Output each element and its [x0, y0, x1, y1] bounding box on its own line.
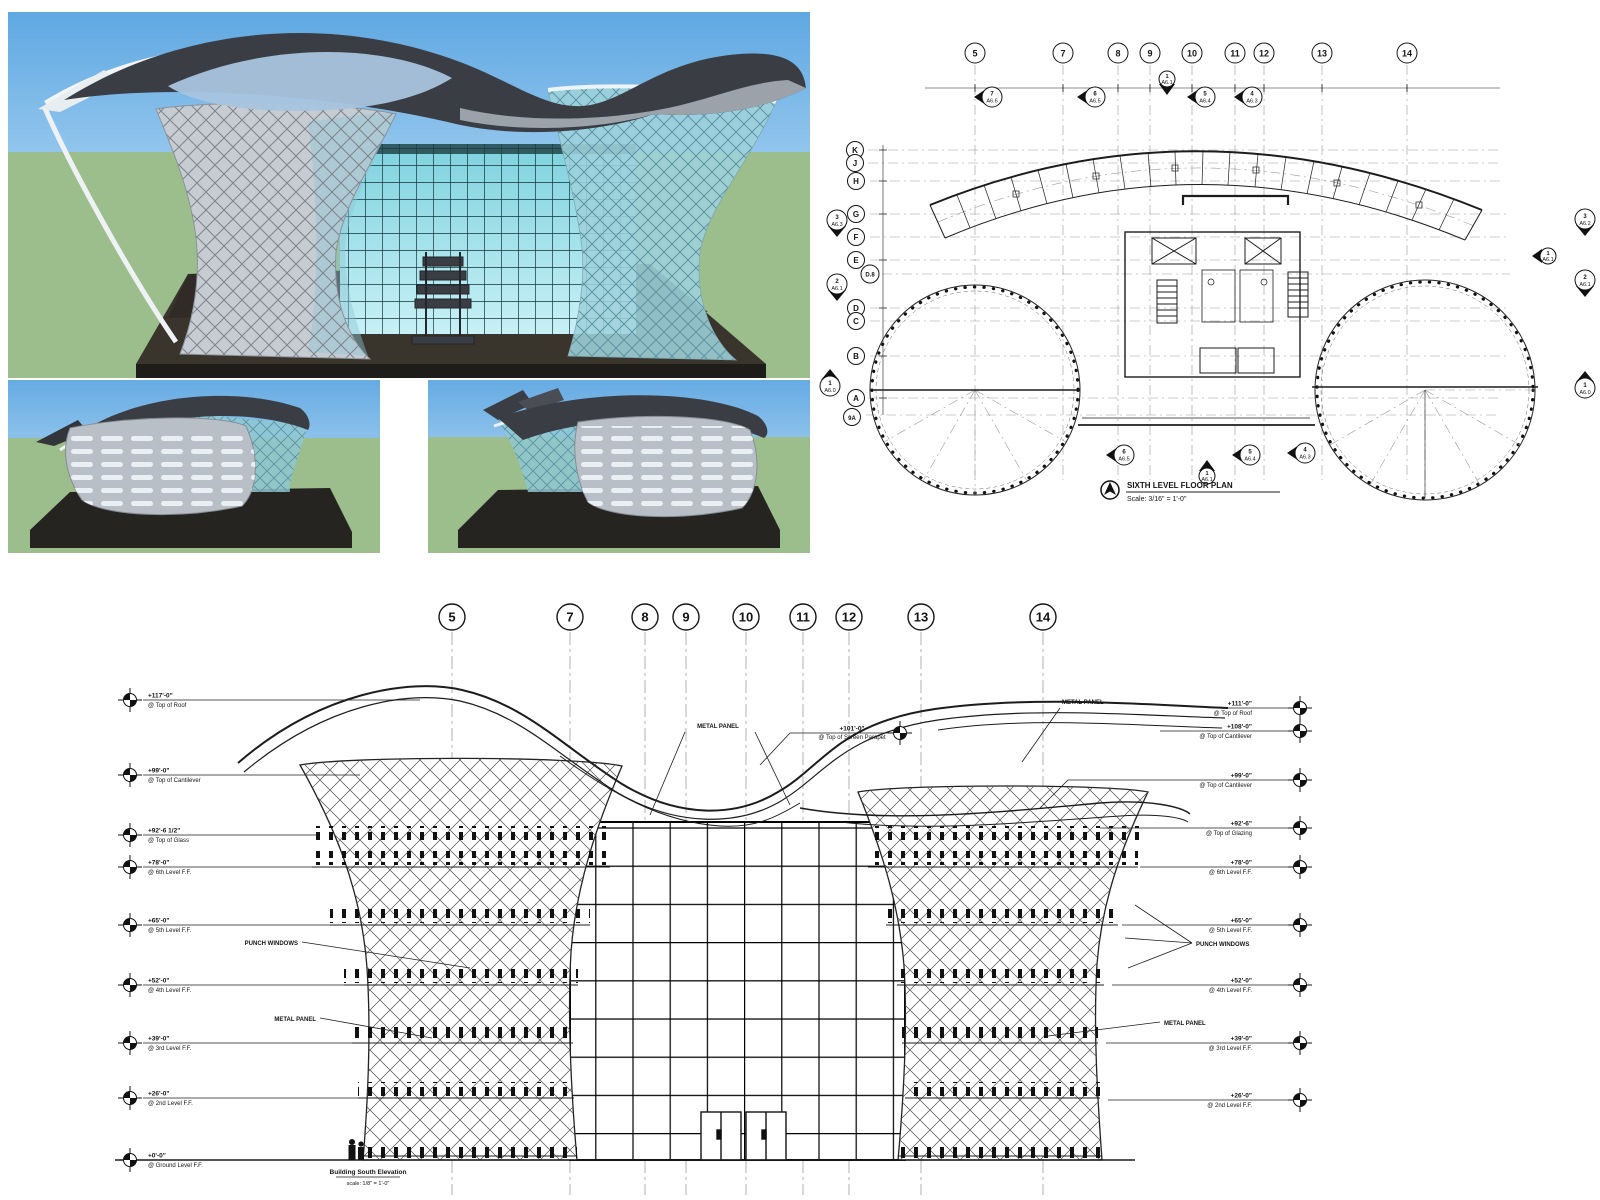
level-datum: +108'-0" @ Top of Cantilever: [1160, 719, 1312, 743]
level-datum: +52'-0" @ 4th Level F.F.: [1112, 973, 1312, 997]
svg-text:A6.1: A6.1: [1161, 80, 1172, 86]
svg-text:+52'-0": +52'-0": [1231, 978, 1252, 985]
svg-text:@ 2nd Level F.F.: @ 2nd Level F.F.: [1207, 1103, 1252, 1109]
render-thumb-left: [8, 380, 380, 553]
section-marker-icon: 3 A6.3: [827, 210, 847, 237]
level-datum: +78'-0" @ 6th Level F.F.: [1140, 855, 1312, 879]
svg-text:+117'-0": +117'-0": [148, 693, 173, 700]
svg-text:+26'-0": +26'-0": [1231, 1093, 1252, 1100]
svg-text:@ 5th Level F.F.: @ 5th Level F.F.: [148, 928, 191, 934]
elev-title-block: Building South Elevation scale: 1/8" = 1…: [330, 1169, 407, 1187]
grid-bubble: 7: [566, 610, 573, 625]
parapet-datum: +101'-0" @ Top of Screen Parapet: [760, 721, 912, 765]
section-marker-icon: 2 A6.1: [827, 274, 847, 301]
plan-core: [1125, 196, 1308, 377]
svg-text:@ Top of Screen Parapet: @ Top of Screen Parapet: [818, 735, 886, 741]
section-marker-icon: 1 A6.0: [820, 369, 840, 396]
louver-slots: [574, 426, 758, 510]
level-datum: +0'-0" @ Ground Level F.F.: [118, 1148, 340, 1172]
svg-text:@ Top of Cantilever: @ Top of Cantilever: [1199, 734, 1252, 740]
level-datum: +65'-0" @ 5th Level F.F.: [118, 913, 344, 937]
svg-text:+65'-0": +65'-0": [148, 918, 169, 925]
svg-text:@ 4th Level F.F.: @ 4th Level F.F.: [148, 988, 191, 994]
svg-text:+0'-0": +0'-0": [148, 1153, 166, 1160]
svg-text:+78'-0": +78'-0": [1231, 860, 1252, 867]
svg-text:@ 4th Level F.F.: @ 4th Level F.F.: [1209, 988, 1252, 994]
svg-text:@ 6th Level F.F.: @ 6th Level F.F.: [1209, 870, 1252, 876]
metal-band: [574, 416, 758, 516]
svg-text:A6.3: A6.3: [831, 222, 842, 228]
svg-text:A6.4: A6.4: [1244, 457, 1255, 463]
svg-text:+52'-0": +52'-0": [148, 978, 169, 985]
section-marker-icon: 4 A6.3: [1234, 87, 1262, 107]
section-marker-icon: 5 A6.4: [1187, 87, 1215, 107]
section-marker-icon: 3 A6.2: [1575, 209, 1595, 236]
level-datum: +39'-0" @ 3rd Level F.F.: [118, 1031, 362, 1055]
grid-bubble: G: [853, 210, 859, 219]
metal-band: [64, 418, 260, 515]
plan-title: SIXTH LEVEL FLOOR PLAN: [1127, 481, 1233, 490]
plan-left-drum: [870, 285, 1080, 495]
svg-text:A6.3: A6.3: [1299, 455, 1310, 461]
elev-building: [115, 686, 1228, 1160]
plan-grid-row-bubbles: [844, 142, 880, 426]
svg-text:@ Top of Cantilever: @ Top of Cantilever: [148, 778, 201, 784]
svg-text:+92'-6 1/2": +92'-6 1/2": [148, 828, 180, 835]
svg-text:A6.3: A6.3: [1246, 99, 1257, 105]
svg-text:@ Ground Level F.F.: @ Ground Level F.F.: [148, 1163, 203, 1169]
annotation-metal-panel-topright: METAL PANEL: [1022, 700, 1104, 762]
scale-figures: [349, 1139, 365, 1160]
level-datum: +65'-0" @ 5th Level F.F.: [1122, 913, 1312, 937]
grid-bubble: 12: [842, 610, 856, 625]
svg-text:@ 2nd Level F.F.: @ 2nd Level F.F.: [148, 1101, 193, 1107]
svg-text:@ 3rd Level F.F.: @ 3rd Level F.F.: [148, 1046, 192, 1052]
svg-text:METAL PANEL: METAL PANEL: [274, 1017, 316, 1023]
grid-bubble: 10: [739, 610, 753, 625]
north-arrow-icon: [1104, 482, 1116, 495]
level-datum: +111'-0" @ Top of Roof: [1214, 696, 1312, 720]
section-marker-icon: 6 A6.5: [1106, 445, 1134, 465]
grid-bubble: 9A: [848, 416, 856, 422]
svg-text:A6.6: A6.6: [986, 99, 997, 105]
annotation-metal-panel-center: METAL PANEL: [650, 724, 790, 815]
level-datum: +39'-0" @ 3rd Level F.F.: [1106, 1031, 1312, 1055]
grid-bubble: D.8: [865, 273, 875, 279]
plan-scale: Scale: 3/16" = 1'-0": [1127, 496, 1187, 503]
elevation-drawing: 5 7 8 9 10 11 12 13 14: [0, 560, 1600, 1200]
grid-bubble: 14: [1036, 610, 1051, 625]
section-marker-icon: 1 A6.1: [1159, 71, 1175, 95]
svg-text:+99'-0": +99'-0": [1231, 773, 1252, 780]
render-main-canvas: [8, 12, 810, 378]
svg-text:A6.1: A6.1: [831, 286, 842, 292]
svg-text:PUNCH WINDOWS: PUNCH WINDOWS: [245, 941, 298, 947]
section-marker-icon: 1 A6.1: [1532, 248, 1556, 264]
svg-text:@ 3rd Level F.F.: @ 3rd Level F.F.: [1209, 1046, 1253, 1052]
svg-text:METAL PANEL: METAL PANEL: [1062, 700, 1104, 706]
elev-title: Building South Elevation: [330, 1169, 407, 1176]
svg-text:@ Top of Glass: @ Top of Glass: [148, 838, 189, 844]
level-datum: +92'-6 1/2" @ Top of Glass: [118, 823, 318, 847]
grid-bubble: 5: [972, 49, 977, 59]
svg-text:+92'-6": +92'-6": [1231, 821, 1252, 828]
plan-right-drum: [1312, 280, 1538, 500]
svg-text:@ Top of Cantilever: @ Top of Cantilever: [1199, 783, 1252, 789]
svg-text:@ Top of Roof: @ Top of Roof: [1214, 711, 1253, 717]
plan-body: [870, 151, 1538, 500]
grid-bubble: 13: [914, 610, 928, 625]
grid-bubble: 8: [641, 610, 648, 625]
grid-bubble: K: [852, 146, 858, 155]
svg-text:A6.5: A6.5: [1089, 99, 1100, 105]
svg-text:PUNCH WINDOWS: PUNCH WINDOWS: [1196, 942, 1249, 948]
section-marker-icon: 6 A6.5: [1077, 87, 1105, 107]
grid-bubble: C: [853, 317, 859, 326]
render-main: [8, 12, 810, 378]
grid-bubble: 9: [682, 610, 689, 625]
grid-bubble: 5: [448, 610, 455, 625]
grid-bubble: D: [853, 304, 859, 313]
annotation-punch-windows-right: PUNCH WINDOWS: [1125, 905, 1249, 968]
grid-bubble: 11: [1230, 49, 1240, 59]
grid-bubble: 13: [1317, 49, 1327, 59]
svg-text:METAL PANEL: METAL PANEL: [697, 724, 739, 730]
level-datum: +26'-0" @ 2nd Level F.F.: [118, 1086, 366, 1110]
svg-text:METAL PANEL: METAL PANEL: [1164, 1021, 1206, 1027]
plan-section-markers: 7 A6.6 6 A6.5 1 A6.1 5 A6.4: [820, 71, 1595, 484]
svg-text:@ 6th Level F.F.: @ 6th Level F.F.: [148, 870, 191, 876]
grid-bubble: J: [853, 159, 857, 168]
svg-text:+101'-0": +101'-0": [839, 726, 864, 733]
section-marker-icon: 1 A6.0: [1575, 371, 1595, 398]
svg-text:+108'-0": +108'-0": [1227, 724, 1252, 731]
grid-bubble: 8: [1115, 49, 1120, 59]
section-marker-icon: 5 A6.4: [1232, 445, 1260, 465]
svg-text:@ Top of Glazing: @ Top of Glazing: [1206, 831, 1252, 837]
grid-bubble: 11: [796, 610, 810, 625]
level-datum: +78'-0" @ 6th Level F.F.: [118, 855, 332, 879]
grid-bubble: H: [853, 177, 859, 186]
svg-text:A6.0: A6.0: [824, 388, 835, 394]
section-marker-icon: 4 A6.3: [1287, 443, 1315, 463]
elev-scale: scale: 1/8" = 1'-0": [347, 1181, 390, 1187]
level-datum: +52'-0" @ 4th Level F.F.: [118, 973, 354, 997]
svg-text:+39'-0": +39'-0": [1231, 1036, 1252, 1043]
grid-bubble: F: [854, 233, 859, 242]
louver-slots: [64, 430, 260, 510]
level-datum: +26'-0" @ 2nd Level F.F.: [1108, 1088, 1312, 1112]
grid-bubble: A: [853, 394, 859, 403]
svg-text:A6.0: A6.0: [1579, 390, 1590, 396]
grid-bubble: 9: [1147, 49, 1152, 59]
grid-bubble: 12: [1259, 49, 1269, 59]
render-thumb-right: [428, 380, 810, 553]
grid-bubble: 7: [1060, 49, 1065, 59]
grid-bubble: B: [853, 352, 859, 361]
plan-title-block: SIXTH LEVEL FLOOR PLAN Scale: 3/16" = 1'…: [1101, 481, 1280, 503]
svg-text:+99'-0": +99'-0": [148, 768, 169, 775]
svg-text:A6.4: A6.4: [1199, 99, 1210, 105]
svg-text:+26'-0": +26'-0": [148, 1091, 169, 1098]
svg-text:A6.2: A6.2: [1579, 221, 1590, 227]
section-marker-icon: 7 A6.6: [974, 87, 1002, 107]
svg-text:A6.5: A6.5: [1118, 457, 1129, 463]
svg-text:+39'-0": +39'-0": [148, 1036, 169, 1043]
curtain-wall: [570, 822, 905, 1160]
svg-text:A6.1: A6.1: [1579, 282, 1590, 288]
grid-bubble: 10: [1187, 49, 1197, 59]
svg-text:+111'-0": +111'-0": [1228, 701, 1252, 708]
svg-text:+78'-0": +78'-0": [148, 860, 169, 867]
grid-bubble: E: [853, 256, 859, 265]
svg-text:+65'-0": +65'-0": [1231, 918, 1252, 925]
svg-text:@ 5th Level F.F.: @ 5th Level F.F.: [1209, 928, 1252, 934]
svg-text:@ Top of Roof: @ Top of Roof: [148, 703, 187, 709]
svg-text:A6.1: A6.1: [1542, 257, 1553, 263]
grid-bubble: 14: [1402, 49, 1412, 59]
section-marker-icon: 2 A6.1: [1575, 270, 1595, 297]
floor-plan-drawing: 5 7 8 9 10 11 12 13 14 K J H G: [810, 0, 1600, 560]
presentation-sheet: 5 7 8 9 10 11 12 13 14 K J H G: [0, 0, 1600, 1200]
